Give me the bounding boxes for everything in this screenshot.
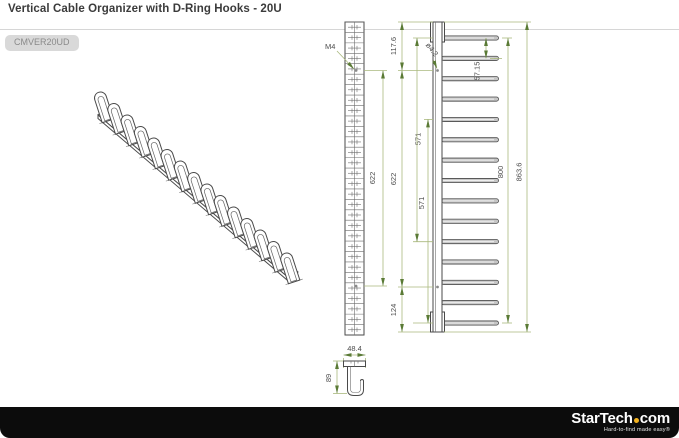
section-view: 48.4 89 [324, 344, 366, 396]
brand-star: StarTech [571, 410, 632, 427]
brand-wordmark: StarTechcom [571, 411, 670, 426]
brand-tld: com [640, 410, 670, 427]
dim-side-hole-span: 622 [389, 173, 398, 186]
label-m4-thread: M4 [325, 42, 335, 51]
side-view-hooks [442, 36, 499, 325]
dim-side-hook-pitch: 57.15 [473, 62, 482, 81]
dim-side-total-height: 863.6 [515, 163, 524, 182]
dim-side-top-offset: 117.6 [389, 37, 398, 55]
side-view: 117.6 622 124 571 571 57.15 800 863.6 ø4… [389, 22, 531, 332]
dim-section-width: 48.4 [347, 344, 362, 353]
iso-hook-rings [90, 90, 303, 285]
brand-tagline: Hard-to-find made easy® [571, 428, 670, 434]
technical-drawing: M4 622 [0, 0, 679, 438]
product-drawing-page: Vertical Cable Organizer with D-Ring Hoo… [0, 0, 679, 438]
dim-side-hook-span: 800 [496, 166, 505, 179]
startech-logo: StarTechcom Hard-to-find made easy® [571, 411, 679, 434]
front-view: M4 622 [325, 22, 387, 335]
dim-side-bottom-offset: 124 [389, 304, 398, 317]
isometric-view [90, 90, 303, 285]
dim-front-hole-span: 622 [368, 172, 377, 185]
dim-side-span-upper: 571 [417, 197, 426, 210]
dim-side-span-lower: 571 [414, 133, 423, 146]
dim-section-height: 89 [324, 374, 333, 382]
footer-bar: StarTechcom Hard-to-find made easy® [0, 407, 679, 438]
logo-dot-icon [634, 418, 639, 423]
